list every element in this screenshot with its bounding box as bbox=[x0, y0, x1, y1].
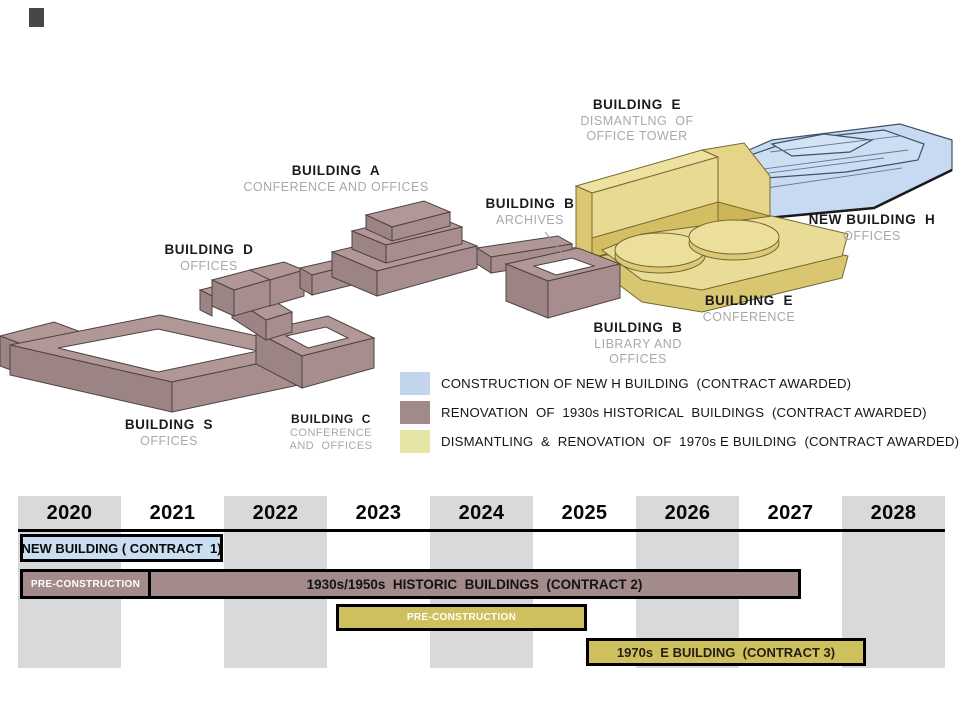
building-sub: CONFERENCE AND OFFICES bbox=[216, 180, 456, 195]
building-name: BUILDING E bbox=[629, 293, 869, 310]
label-building-e-dismantling: BUILDING E DISMANTLNG OF OFFICE TOWER bbox=[517, 97, 757, 144]
year-label: 2027 bbox=[739, 502, 842, 525]
year-label: 2024 bbox=[430, 502, 533, 525]
legend-item-historic: RENOVATION OF 1930s HISTORICAL BUILDINGS… bbox=[400, 400, 959, 424]
building-sub: DISMANTLNG OF OFFICE TOWER bbox=[517, 114, 757, 144]
slide: BUILDING E DISMANTLNG OF OFFICE TOWER BU… bbox=[0, 0, 960, 720]
timeline-axis bbox=[18, 529, 945, 532]
gantt-bar-contract3: 1970s E BUILDING (CONTRACT 3) bbox=[586, 638, 866, 666]
building-name: NEW BUILDING H bbox=[752, 212, 960, 229]
label-new-building-h: NEW BUILDING H OFFICES bbox=[752, 212, 960, 244]
building-name: BUILDING A bbox=[216, 163, 456, 180]
building-sub: OFFICES bbox=[752, 229, 960, 244]
legend-label: RENOVATION OF 1930s HISTORICAL BUILDINGS… bbox=[441, 405, 927, 420]
label-building-b-archives: BUILDING B ARCHIVES bbox=[410, 196, 650, 228]
legend-item-e-building: DISMANTLING & RENOVATION OF 1970s E BUIL… bbox=[400, 429, 959, 453]
legend-label: CONSTRUCTION OF NEW H BUILDING (CONTRACT… bbox=[441, 376, 851, 391]
gantt-bar-preconstruction-e-building: PRE-CONSTRUCTION bbox=[336, 604, 587, 631]
year-label: 2021 bbox=[121, 502, 224, 525]
gantt-segment-contract2: 1930s/1950s HISTORIC BUILDINGS (CONTRACT… bbox=[151, 572, 798, 596]
building-name: BUILDING B bbox=[518, 320, 758, 337]
building-sub: ARCHIVES bbox=[410, 213, 650, 228]
legend-swatch-yellow-icon bbox=[400, 430, 430, 453]
legend-label: DISMANTLING & RENOVATION OF 1970s E BUIL… bbox=[441, 434, 959, 449]
building-name: BUILDING E bbox=[517, 97, 757, 114]
legend: CONSTRUCTION OF NEW H BUILDING (CONTRACT… bbox=[400, 371, 959, 458]
legend-swatch-brown-icon bbox=[400, 401, 430, 424]
year-label: 2023 bbox=[327, 502, 430, 525]
legend-swatch-blue-icon bbox=[400, 372, 430, 395]
label-building-a: BUILDING A CONFERENCE AND OFFICES bbox=[216, 163, 456, 195]
year-label: 2020 bbox=[18, 502, 121, 525]
legend-item-new-h: CONSTRUCTION OF NEW H BUILDING (CONTRACT… bbox=[400, 371, 959, 395]
year-label: 2025 bbox=[533, 502, 636, 525]
building-name: BUILDING B bbox=[410, 196, 650, 213]
gantt-bar-contract2-row: PRE-CONSTRUCTION 1930s/1950s HISTORIC BU… bbox=[20, 569, 801, 599]
building-name: BUILDING D bbox=[89, 242, 329, 259]
gantt-segment-preconstruction-historic: PRE-CONSTRUCTION bbox=[23, 572, 151, 596]
year-label: 2026 bbox=[636, 502, 739, 525]
building-sub: LIBRARY AND OFFICES bbox=[518, 337, 758, 367]
building-sub: OFFICES bbox=[89, 259, 329, 274]
label-building-d: BUILDING D OFFICES bbox=[89, 242, 329, 274]
gantt-bar-contract1: NEW BUILDING ( CONTRACT 1) bbox=[20, 534, 223, 562]
year-label: 2028 bbox=[842, 502, 945, 525]
year-label: 2022 bbox=[224, 502, 327, 525]
label-building-b-library: BUILDING B LIBRARY AND OFFICES bbox=[518, 320, 758, 367]
